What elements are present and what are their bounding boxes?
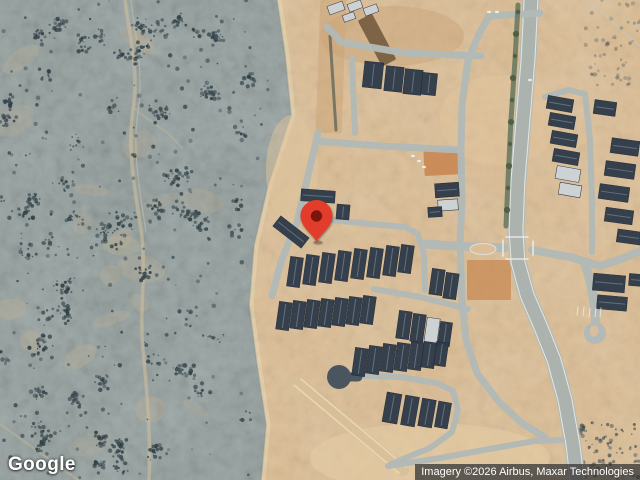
google-logo[interactable]: Google xyxy=(8,454,76,476)
satellite-imagery xyxy=(0,0,640,480)
map-viewport[interactable]: Google Imagery ©2026 Airbus, Maxar Techn… xyxy=(0,0,640,480)
pin-dot xyxy=(311,210,322,221)
map-layers xyxy=(0,0,640,480)
attribution-text: Imagery ©2026 Airbus, Maxar Technologies xyxy=(415,464,640,480)
pin-ground-shadow xyxy=(313,241,323,245)
